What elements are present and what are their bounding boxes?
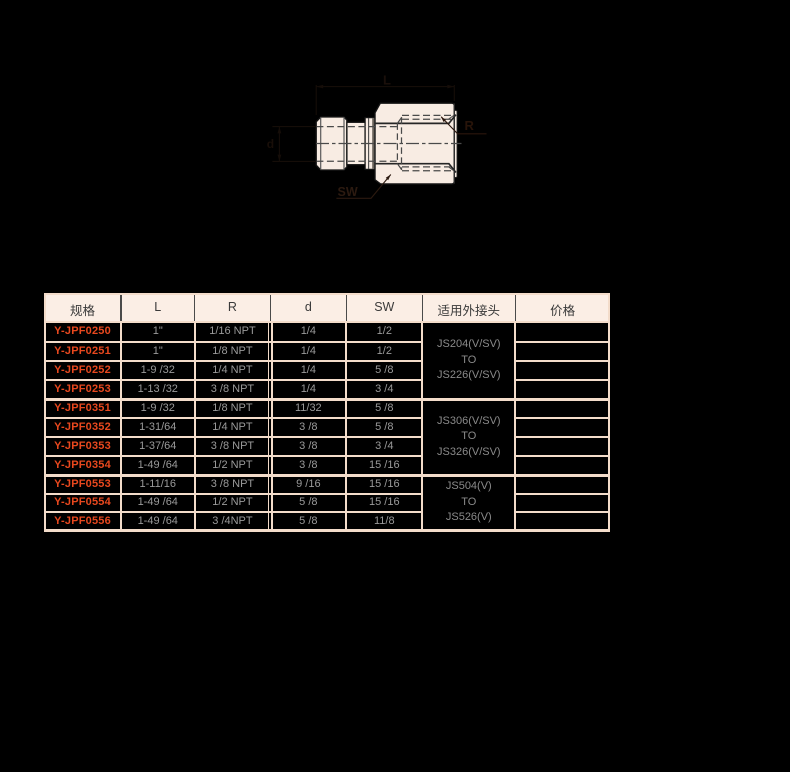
svg-text:R: R	[465, 118, 475, 133]
svg-text:SW: SW	[338, 185, 358, 199]
svg-text:d: d	[267, 137, 274, 151]
svg-text:L: L	[383, 73, 391, 88]
